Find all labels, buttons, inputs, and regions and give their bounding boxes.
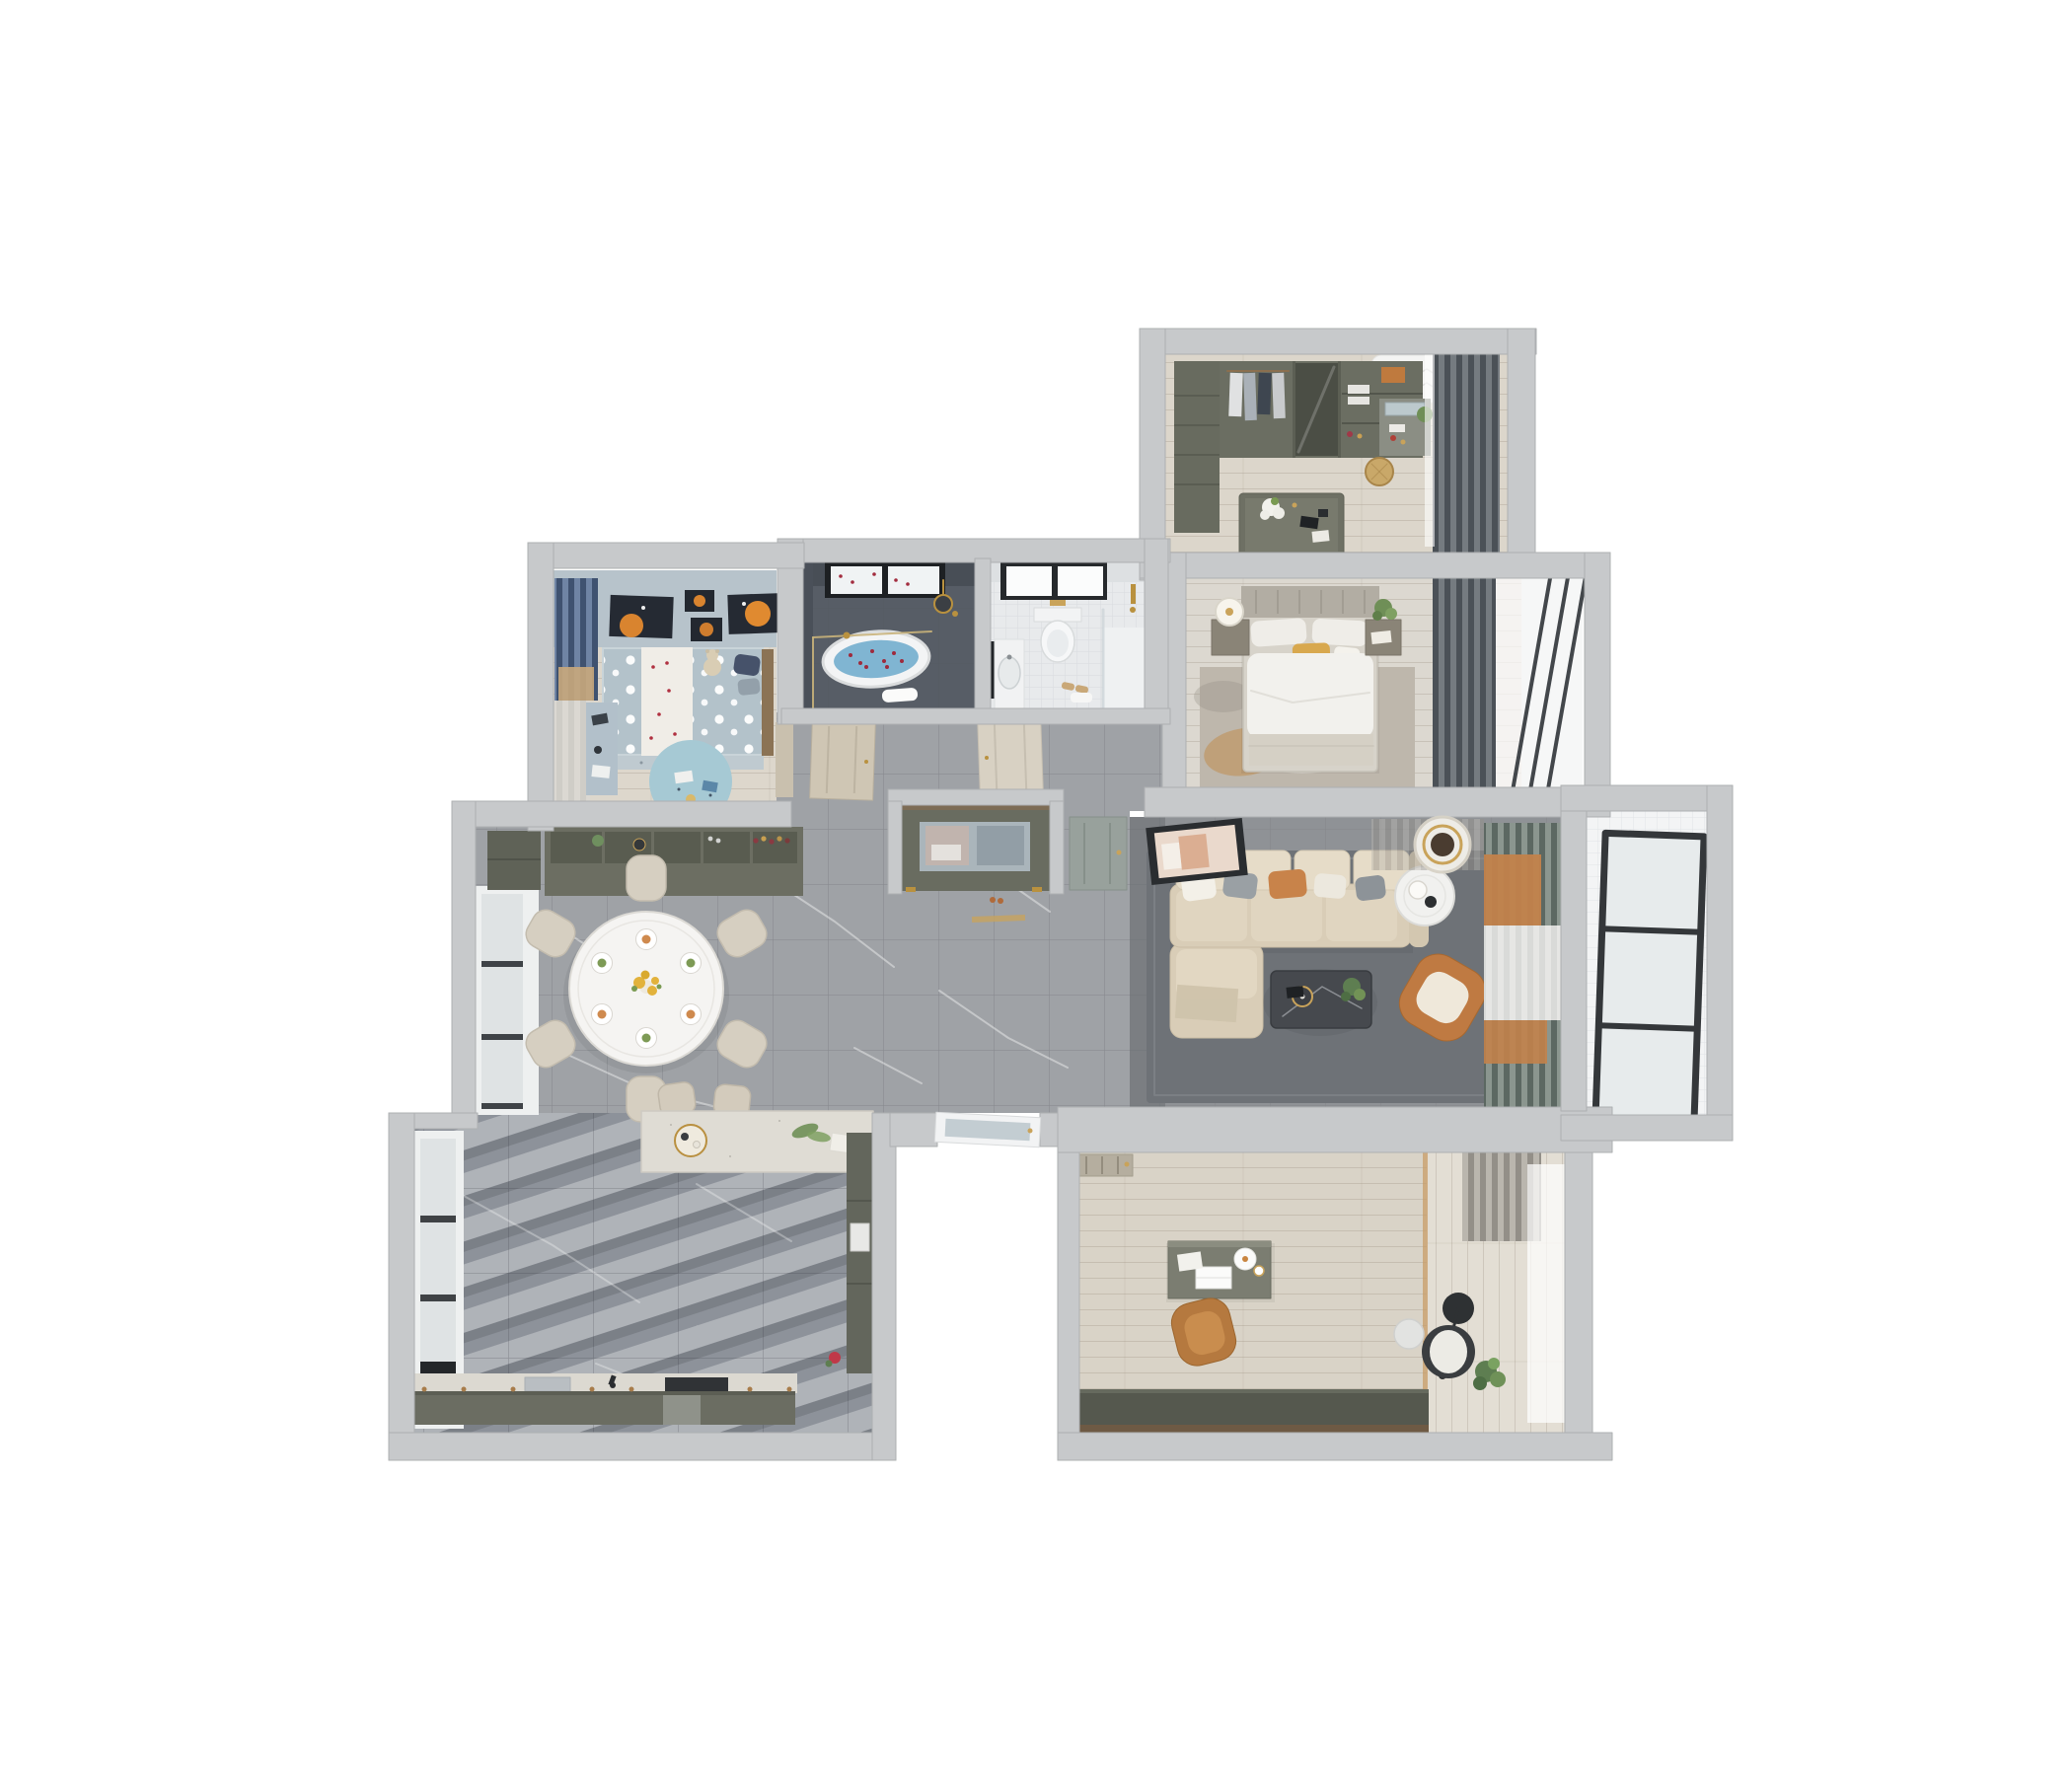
door-handle-gold (985, 756, 989, 760)
perfume (1347, 431, 1353, 437)
food (598, 959, 607, 968)
wall-art-planet (694, 595, 705, 607)
coffee-plant (1341, 992, 1351, 1001)
runner-dot (673, 732, 677, 736)
sink-inset (525, 1377, 570, 1391)
centerpiece-leaf (631, 986, 637, 992)
chaise-throw (1175, 985, 1238, 1022)
centerpiece-flower (651, 977, 659, 985)
lounge-cushion (1430, 1330, 1467, 1373)
teddy-ear (705, 649, 709, 653)
sink (999, 657, 1020, 689)
entry-door-handle (1028, 1129, 1033, 1134)
island-item-dark (1318, 509, 1328, 517)
floor-plan-page (0, 0, 2072, 1776)
wardrobe-shelf-line (1174, 395, 1220, 397)
tub-faucet-gold (844, 632, 851, 639)
wall-left-lower (389, 1113, 414, 1460)
counter-flower-leaf (826, 1361, 833, 1368)
side-lamp-shade (1409, 881, 1427, 899)
shower-head (934, 595, 952, 613)
cosmetic (1390, 435, 1396, 441)
rug-toy-letter (709, 794, 712, 797)
desk-food (1242, 1256, 1248, 1262)
tray-teapot (681, 1133, 689, 1141)
drawer-handle (640, 762, 643, 765)
wine-bottle (761, 836, 766, 841)
wardrobe-shelf-line (1174, 424, 1220, 426)
cloak-sheer (1425, 349, 1435, 547)
side-table-small (1394, 1319, 1424, 1349)
table-lamp-glow (1225, 608, 1233, 616)
wardrobe-shelf-line (1174, 454, 1220, 456)
orange-box (1381, 367, 1405, 383)
towel (1071, 693, 1092, 703)
food (687, 959, 696, 968)
coffee-plant (1354, 989, 1366, 1000)
wine-glass (716, 839, 721, 844)
wall-console-side (1050, 801, 1064, 894)
sideboard-divider (602, 832, 605, 863)
hall-door-line (1109, 823, 1111, 884)
kids-pillow-grey (737, 678, 761, 696)
tub-towel (882, 688, 919, 703)
kids-pillow-navy (733, 653, 762, 676)
mat-line (1101, 1156, 1103, 1174)
cabinet-top-line (1079, 1389, 1429, 1393)
water-petal (885, 665, 889, 669)
bath2-window-pane (1058, 566, 1103, 596)
kids-sheer-pleats (551, 701, 590, 801)
hanging-cloth (1272, 373, 1286, 418)
wine-bottle (777, 836, 781, 841)
runner-dot (657, 712, 661, 716)
headboard (1241, 586, 1379, 618)
wall-bath-header (781, 708, 1170, 724)
console-leg-gold (1032, 887, 1042, 892)
wall-master-right (1585, 553, 1610, 811)
nightstand-plant (1385, 608, 1397, 620)
mat-line (1085, 1156, 1087, 1174)
perfume (1358, 434, 1363, 439)
headboard-slat (1255, 590, 1257, 614)
painting-shape (1161, 843, 1182, 870)
food (642, 1034, 651, 1043)
painting-shape (1178, 834, 1209, 870)
mat-handle-gold (1125, 1162, 1130, 1167)
wall-dining-top (452, 801, 791, 827)
living-curtain-orange (1484, 854, 1541, 925)
sideboard-divider (701, 832, 703, 863)
nightstand-plant (1372, 611, 1382, 621)
kids-headboard-wood (762, 649, 774, 756)
wall-art-planet (745, 601, 771, 627)
petal (894, 578, 898, 582)
sideboard-plant (592, 835, 604, 847)
office-sheer (1527, 1164, 1565, 1423)
wall-living-top (1145, 787, 1610, 817)
wall-console-back (888, 789, 1064, 805)
centerpiece-flower (641, 971, 650, 980)
centerpiece-flower (647, 986, 657, 996)
water-petal (870, 649, 874, 653)
counter-shadowline (401, 1391, 795, 1395)
rug-toy-letter (678, 788, 681, 791)
hanging-cloth (1243, 373, 1257, 420)
window-mullion (420, 1216, 456, 1222)
console-leg-gold (906, 887, 916, 892)
bath-window-pane (831, 566, 882, 594)
counter-appliance (663, 1395, 701, 1425)
pillow (1311, 619, 1368, 647)
door-leaf (978, 713, 1044, 798)
headboard-slat (1342, 590, 1344, 614)
pantry-frame (851, 1223, 869, 1251)
wall-kids-top (528, 543, 804, 568)
centerpiece-leaf (657, 985, 662, 990)
petal (872, 572, 876, 576)
island-top (1245, 498, 1338, 552)
island-speck (670, 1124, 672, 1126)
sofa-pillow (1355, 874, 1387, 901)
scene-root (389, 329, 1733, 1460)
office-plant (1473, 1376, 1487, 1390)
wall-living-office (1058, 1107, 1612, 1152)
runner-dot (651, 665, 655, 669)
headboard-slat (1364, 590, 1366, 614)
counter-olive (401, 1391, 795, 1425)
hall-door-line (1083, 823, 1085, 884)
wall-office-right (1565, 1152, 1592, 1433)
master-curtain (1433, 558, 1496, 807)
desk-item (594, 746, 602, 754)
desk-cup-gold (1254, 1266, 1264, 1276)
wardrobe-divider (1293, 361, 1295, 458)
living-curtain-orange (1484, 1020, 1547, 1064)
counter-item (422, 1387, 427, 1392)
wall-entry-left (890, 1113, 937, 1147)
teddy-ear (715, 649, 719, 653)
shower-handheld (952, 611, 958, 617)
wall-left-upper (452, 801, 476, 1129)
shower-fixture-gold (1130, 607, 1136, 613)
bath-wall-left-strip (803, 560, 813, 712)
bath2-window-pane (1006, 566, 1052, 596)
office-cabinet (1079, 1389, 1429, 1427)
headboard-slat (1298, 590, 1300, 614)
counter-item (590, 1387, 595, 1392)
tall-cabinet-line (487, 858, 541, 860)
nightstand-book (1370, 630, 1391, 644)
wall-console-side (888, 801, 902, 894)
wall-bath-mid (975, 558, 991, 712)
door-mullion (481, 1034, 523, 1040)
wall-bath-right (1145, 539, 1168, 712)
island-speck (778, 1120, 780, 1122)
island-leaf (1271, 497, 1279, 505)
counter-item (629, 1387, 634, 1392)
desk-book (1177, 1251, 1203, 1271)
wall-kitchen-right (872, 1113, 896, 1460)
runner-dot (665, 661, 669, 665)
white-stack (1348, 385, 1369, 394)
pillow (1250, 618, 1307, 647)
wall-cloak-right (1508, 329, 1535, 578)
cooktop (665, 1377, 728, 1392)
door-mullion (481, 1103, 523, 1109)
island-flowers (1273, 507, 1285, 519)
wall-art-planet (700, 623, 713, 636)
wall-kitchen-bottom (389, 1433, 896, 1460)
island-tray (675, 1125, 706, 1156)
water-petal (882, 659, 886, 663)
wardrobe-divider (1338, 361, 1341, 458)
pantry-line (847, 1200, 873, 1202)
wall-cloak-top (1140, 329, 1536, 354)
office-plant (1490, 1371, 1506, 1387)
counter-item (511, 1387, 516, 1392)
hanging-cloth (1257, 373, 1271, 414)
counter-item (748, 1387, 753, 1392)
window-mullion (420, 1295, 456, 1301)
wine-glass (708, 837, 713, 842)
wall-art-astronaut (641, 606, 645, 610)
toilet-seat (1047, 629, 1069, 657)
wall-balcony-bottom (1561, 1115, 1733, 1141)
wall-art-planet (620, 614, 643, 637)
tall-pantry (847, 1133, 873, 1373)
bed-blanket (1249, 734, 1373, 766)
hall-door-handle (1117, 851, 1122, 855)
wall-master-top (1140, 553, 1610, 578)
sofa-pillow-orange (1268, 868, 1307, 899)
shoe (998, 898, 1003, 904)
petal (851, 580, 854, 584)
wall-office-bottom (1058, 1433, 1612, 1460)
runner-dot (649, 736, 653, 740)
wine-bottle (784, 838, 789, 843)
water-petal (892, 651, 896, 655)
wardrobe-left-column (1174, 361, 1220, 533)
balcony (1595, 833, 1704, 1124)
pantry-line (847, 1283, 873, 1285)
wine-bottle (753, 838, 758, 843)
counter-item (787, 1387, 792, 1392)
niche-reflection-bed (931, 845, 961, 860)
sheer-pleats (1484, 925, 1567, 1020)
water-petal (900, 659, 904, 663)
door-mullion (481, 961, 523, 967)
cosmetic (1401, 440, 1406, 445)
wall-kids-left (528, 543, 554, 831)
wall-balcony-right (1707, 785, 1733, 1141)
floor-plan-svg (0, 0, 2072, 1776)
island-flowers (1260, 510, 1270, 520)
sofa-pillow (1313, 873, 1347, 900)
sink-faucet (1007, 655, 1012, 660)
headboard-slat (1277, 590, 1279, 614)
runner-dot (667, 689, 671, 693)
wardrobe-shelf-line (1174, 483, 1220, 485)
island-speck (729, 1155, 731, 1157)
side-lamp-dark (1425, 896, 1437, 908)
food (687, 1010, 696, 1019)
wall-art-astronaut (742, 602, 746, 606)
bath-shower-zone (1103, 628, 1145, 712)
sideboard-shelf (551, 832, 797, 863)
counter-item (462, 1387, 467, 1392)
shoe (990, 897, 996, 903)
door-leaf (810, 719, 876, 800)
shower-fixture-gold (1131, 584, 1136, 604)
wall-office-left (1058, 1152, 1079, 1460)
island-card (1311, 530, 1329, 543)
door-handle-gold (864, 760, 868, 764)
balcony-door-glass (481, 894, 523, 1107)
food (642, 935, 651, 944)
ceiling-light-disc (1431, 833, 1454, 856)
wine-bottle (769, 839, 774, 844)
food (598, 1010, 607, 1019)
balcony-window (1595, 833, 1704, 1124)
petal (839, 574, 843, 578)
water-petal (849, 653, 852, 657)
dining-chair (627, 855, 666, 901)
white-stack (1348, 397, 1369, 405)
wall-balcony-left (1561, 785, 1587, 1111)
vanity-tray (1389, 424, 1405, 432)
mat-line (1117, 1156, 1119, 1174)
toilet-tank (1034, 608, 1081, 622)
island-gold (1293, 503, 1297, 508)
petal (906, 582, 910, 586)
door-leaf-kids (776, 722, 793, 797)
desk-top-edge (1168, 1241, 1271, 1247)
flush-plate-gold (1050, 600, 1066, 606)
table-books (1286, 986, 1303, 999)
cloak-curtain (1433, 343, 1500, 553)
sideboard-divider (750, 832, 753, 863)
water-petal (864, 665, 868, 669)
niche-reflection-cool (977, 826, 1024, 865)
tray-cup (694, 1142, 701, 1148)
pendant-lamp (633, 839, 645, 851)
kids-curtain-beige (558, 667, 594, 701)
hanging-cloth (1228, 373, 1243, 416)
water-petal (858, 661, 862, 665)
cabinet-wood-strip (1079, 1425, 1429, 1433)
desk-paper (591, 765, 610, 778)
headboard-slat (1320, 590, 1322, 614)
office-plant (1488, 1358, 1500, 1369)
